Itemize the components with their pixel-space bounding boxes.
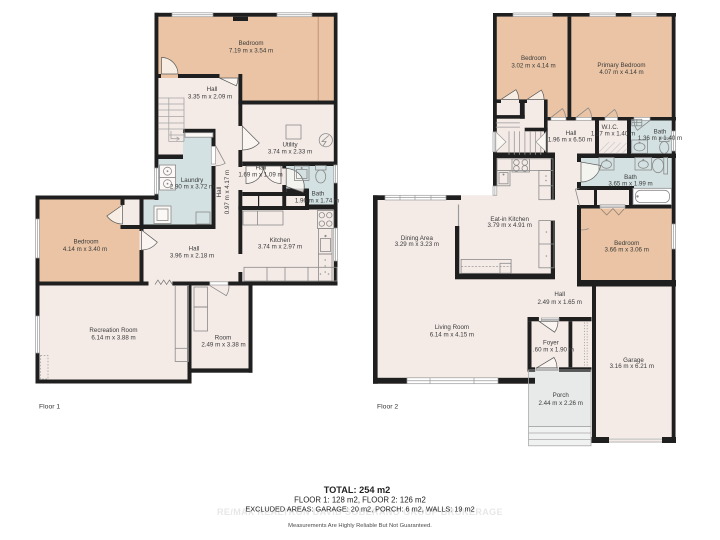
svg-text:.60 m x 1.90 m: .60 m x 1.90 m [533, 347, 574, 354]
svg-text:3.65 m x 1.99 m: 3.65 m x 1.99 m [608, 180, 652, 187]
svg-text:Floor 2: Floor 2 [377, 404, 398, 411]
svg-text:1.69 m x 1.09 m: 1.69 m x 1.09 m [238, 172, 282, 179]
svg-text:Bedroom: Bedroom [521, 55, 546, 62]
svg-text:4.07 m x 4.14 m: 4.07 m x 4.14 m [599, 69, 643, 76]
svg-text:2.90 m x 3.72 m: 2.90 m x 3.72 m [170, 184, 214, 191]
svg-text:3.96 m x 2.18 m: 3.96 m x 2.18 m [170, 252, 214, 259]
svg-text:Hall: Hall [216, 187, 223, 198]
svg-text:Bedroom: Bedroom [73, 239, 98, 246]
svg-text:3.74 m x 2.33 m: 3.74 m x 2.33 m [268, 148, 312, 155]
svg-text:2.49 m x 3.38 m: 2.49 m x 3.38 m [201, 342, 245, 349]
svg-text:3.29 m x 3.23 m: 3.29 m x 3.23 m [395, 241, 439, 248]
svg-text:6.14 m x 3.88 m: 6.14 m x 3.88 m [91, 335, 135, 342]
svg-text:EXCLUDED AREAS: GARAGE: 20 m2,: EXCLUDED AREAS: GARAGE: 20 m2, PORCH: 6 … [245, 505, 474, 514]
svg-text:Porch: Porch [553, 392, 570, 399]
svg-text:Hall: Hall [256, 165, 267, 172]
svg-text:6.14 m x 4.15 m: 6.14 m x 4.15 m [430, 331, 474, 338]
svg-text:1.96 m x 6.50 m: 1.96 m x 6.50 m [548, 136, 592, 143]
svg-text:Room: Room [215, 334, 232, 341]
svg-text:2.44 m x 2.26 m: 2.44 m x 2.26 m [539, 400, 583, 407]
svg-text:Hall: Hall [207, 86, 218, 93]
svg-text:Hall: Hall [189, 245, 200, 252]
svg-text:3.79 m x 4.91 m: 3.79 m x 4.91 m [488, 222, 532, 229]
svg-text:7.19 m x 3.54 m: 7.19 m x 3.54 m [229, 48, 273, 55]
svg-text:Bedroom: Bedroom [238, 40, 263, 47]
svg-text:3.35 m x 2.09 m: 3.35 m x 2.09 m [188, 93, 232, 100]
svg-text:3.74 m x 2.97 m: 3.74 m x 2.97 m [258, 244, 302, 251]
svg-text:1.96 m x 1.74 m: 1.96 m x 1.74 m [295, 197, 339, 204]
svg-text:TOTAL: 254 m2: TOTAL: 254 m2 [324, 485, 391, 495]
svg-text:Primary Bedroom: Primary Bedroom [597, 62, 645, 69]
svg-text:Hall: Hall [554, 291, 565, 298]
svg-text:Foyer: Foyer [543, 340, 559, 347]
svg-text:1.36 m x 1.40 m: 1.36 m x 1.40 m [638, 135, 682, 142]
svg-text:FLOOR 1: 128 m2, FLOOR 2: 126: FLOOR 1: 128 m2, FLOOR 2: 126 m2 [294, 495, 426, 504]
svg-text:4.14 m x 3.40 m: 4.14 m x 3.40 m [63, 246, 107, 253]
svg-text:2.49 m x 1.65 m: 2.49 m x 1.65 m [538, 299, 582, 306]
svg-text:1.17 m x 1.40 m: 1.17 m x 1.40 m [591, 131, 635, 138]
svg-text:Living Room: Living Room [435, 324, 469, 331]
svg-text:Bath: Bath [312, 190, 325, 197]
svg-text:3.66 m x 3.06 m: 3.66 m x 3.06 m [605, 247, 649, 254]
svg-text:Recreation Room: Recreation Room [89, 327, 137, 334]
svg-text:Measurements Are Highly Reliab: Measurements Are Highly Reliable But Not… [288, 523, 432, 529]
svg-text:Floor 1: Floor 1 [39, 404, 60, 411]
svg-text:0.97 m x 4.17 m: 0.97 m x 4.17 m [224, 170, 231, 214]
svg-text:3.02 m x 4.14 m: 3.02 m x 4.14 m [511, 62, 555, 69]
svg-text:3.16 m x 6.21 m: 3.16 m x 6.21 m [610, 363, 654, 370]
